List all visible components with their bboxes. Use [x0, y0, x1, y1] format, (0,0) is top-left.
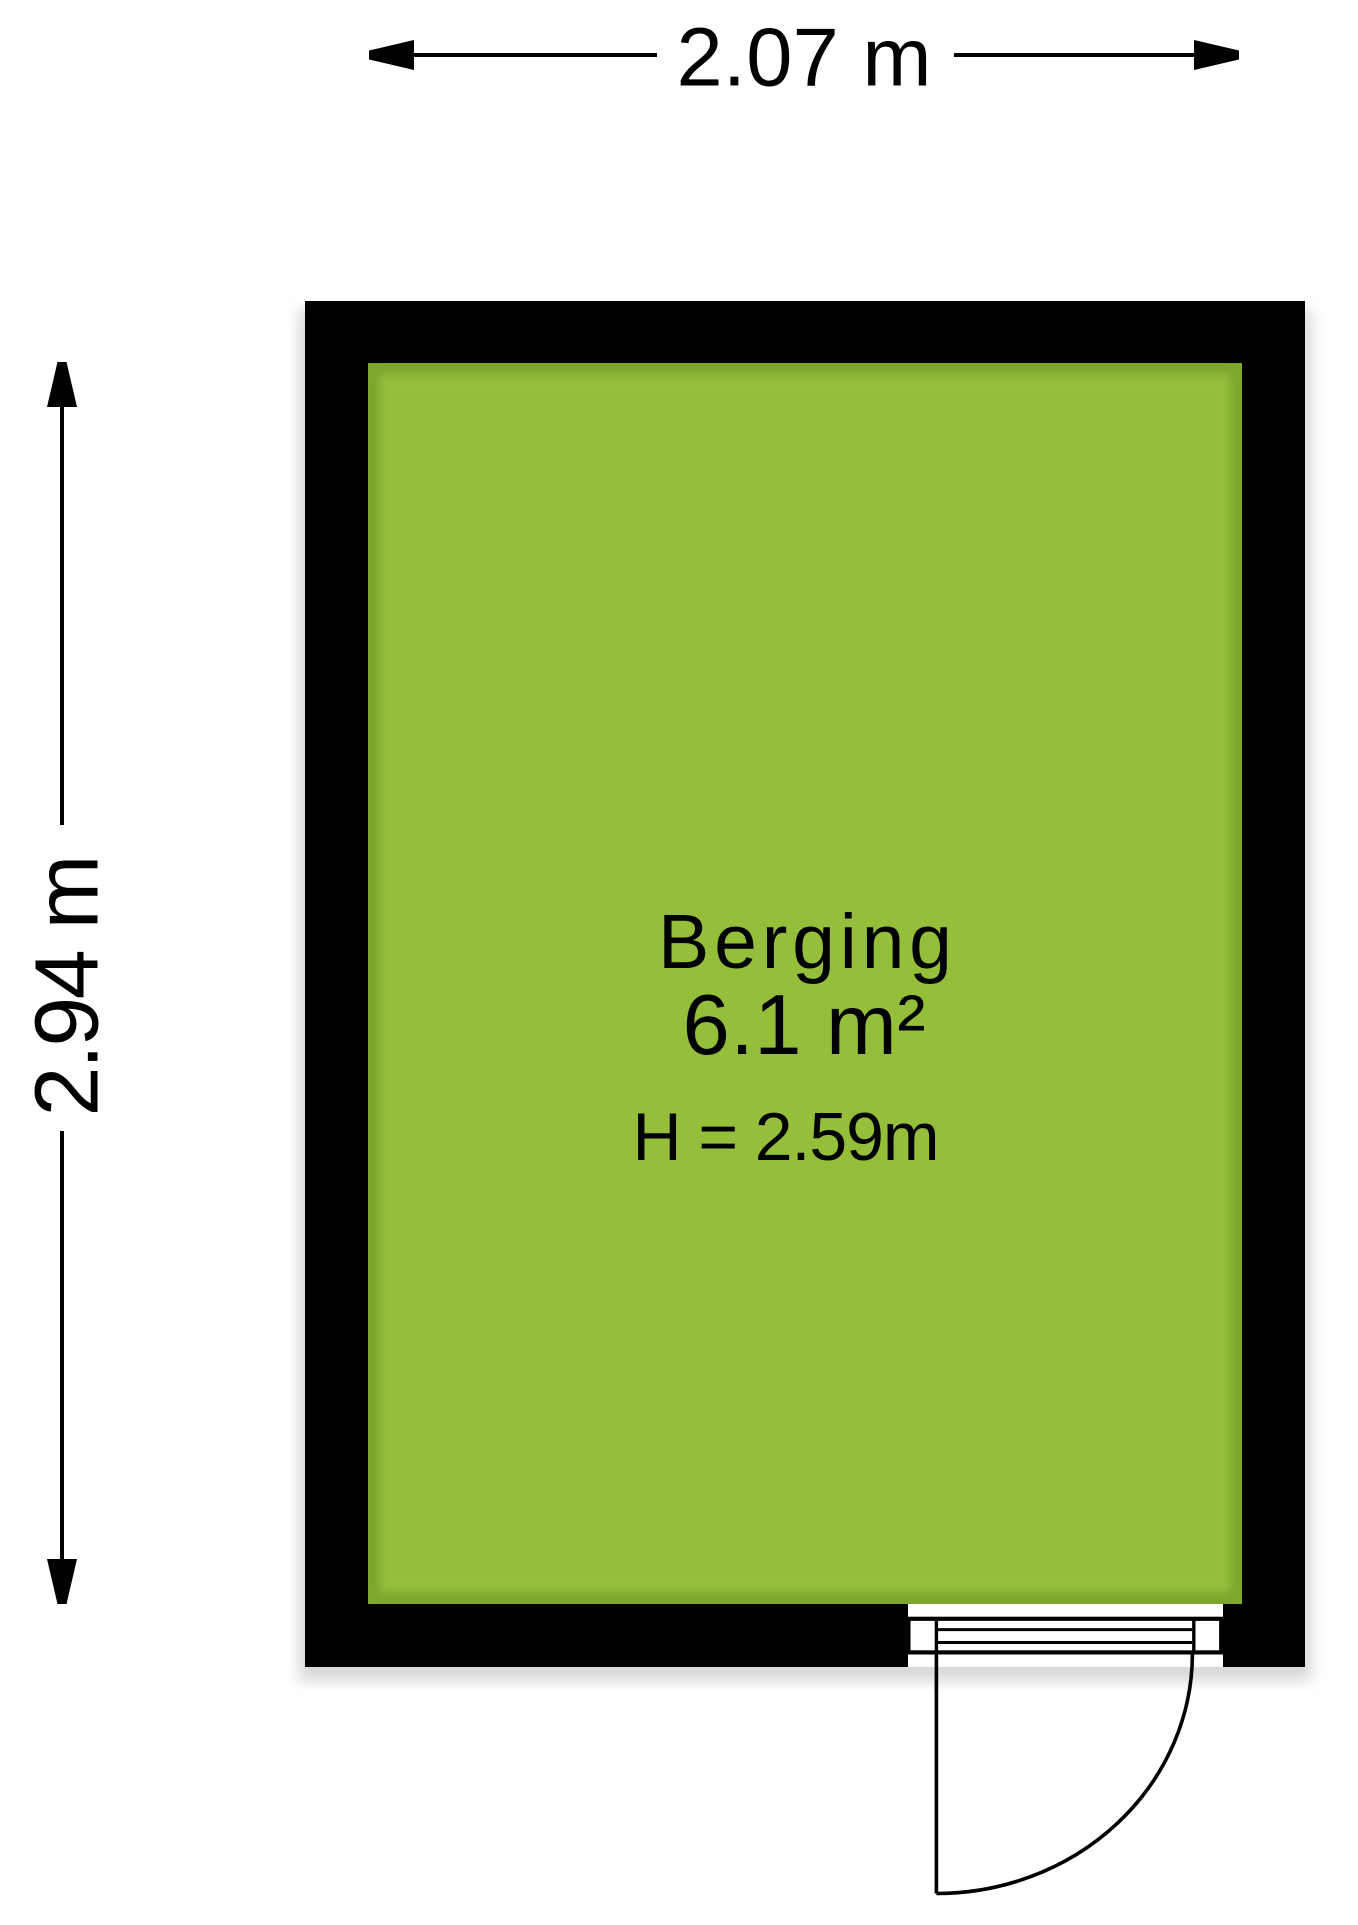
svg-text:H = 2.59m: H = 2.59m: [633, 1099, 940, 1175]
svg-text:2.07 m: 2.07 m: [677, 11, 932, 104]
svg-text:6.1 m²: 6.1 m²: [683, 978, 926, 1073]
svg-text:2.94 m: 2.94 m: [18, 855, 118, 1117]
